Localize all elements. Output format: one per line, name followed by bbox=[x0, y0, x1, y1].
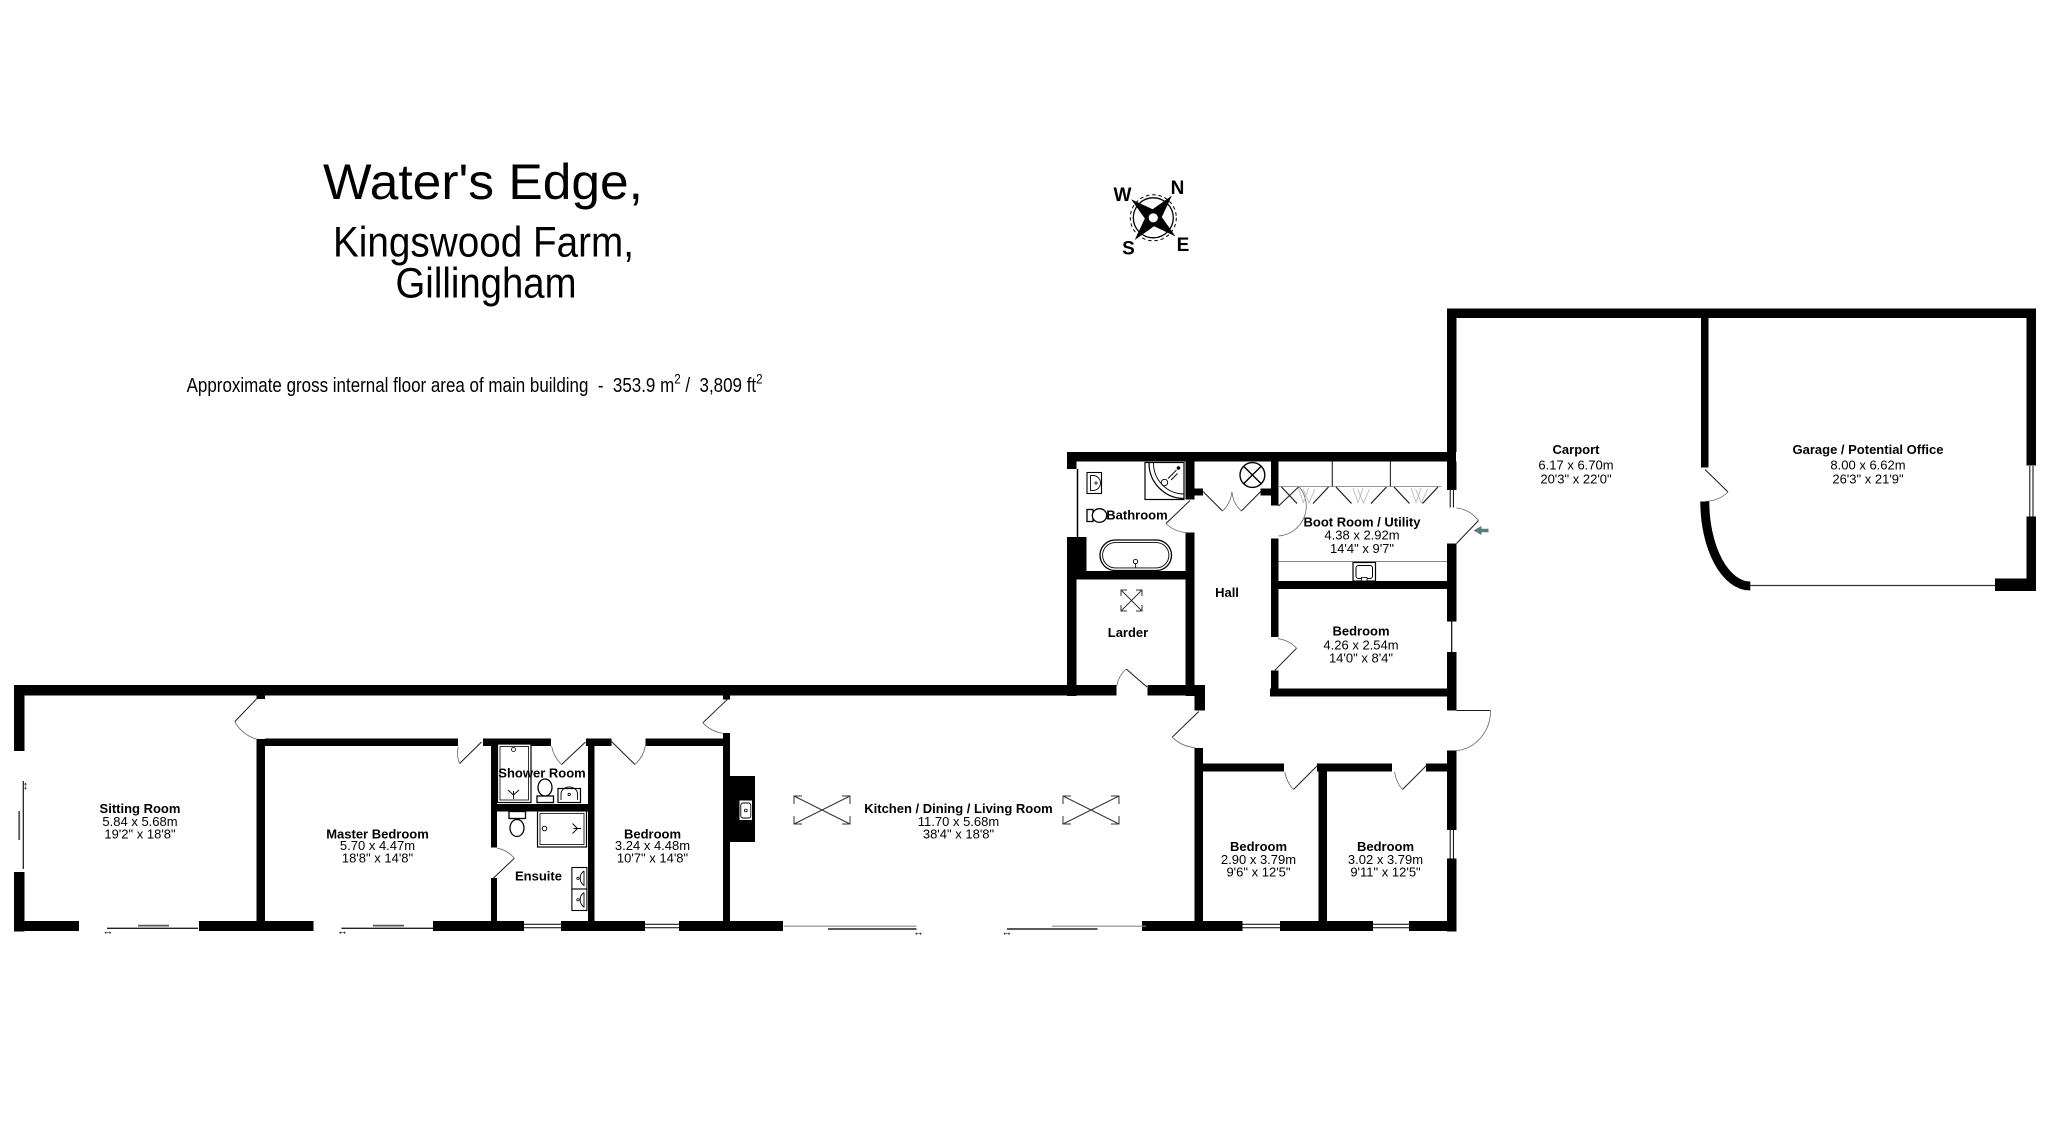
svg-text:↔: ↔ bbox=[337, 926, 348, 938]
svg-text:Carport: Carport bbox=[1553, 442, 1601, 457]
svg-text:W: W bbox=[1114, 185, 1132, 206]
svg-text:N: N bbox=[1171, 178, 1185, 199]
svg-text:Bathroom: Bathroom bbox=[1106, 508, 1167, 523]
svg-text:Ensuite: Ensuite bbox=[515, 869, 562, 884]
svg-text:↔: ↔ bbox=[1002, 927, 1013, 939]
svg-text:18'8" x 14'8": 18'8" x 14'8" bbox=[342, 851, 414, 866]
svg-text:6.17 x 6.70m: 6.17 x 6.70m bbox=[1538, 458, 1613, 473]
svg-text:38'4" x 18'8": 38'4" x 18'8" bbox=[923, 827, 995, 842]
svg-text:Water's Edge,: Water's Edge, bbox=[323, 154, 643, 210]
svg-text:↕: ↕ bbox=[23, 780, 29, 792]
svg-text:Garage / Potential Office: Garage / Potential Office bbox=[1793, 442, 1944, 457]
svg-text:↔: ↔ bbox=[103, 926, 114, 938]
svg-text:9'11" x 12'5": 9'11" x 12'5" bbox=[1350, 865, 1421, 880]
svg-text:Hall: Hall bbox=[1215, 585, 1239, 600]
svg-text:14'4" x 9'7": 14'4" x 9'7" bbox=[1330, 541, 1394, 556]
svg-text:20'3" x 22'0": 20'3" x 22'0" bbox=[1540, 472, 1612, 487]
svg-text:Shower Room: Shower Room bbox=[498, 766, 585, 781]
svg-text:S: S bbox=[1122, 239, 1135, 260]
svg-text:9'6" x 12'5": 9'6" x 12'5" bbox=[1226, 865, 1290, 880]
svg-text:8.00 x 6.62m: 8.00 x 6.62m bbox=[1830, 458, 1905, 473]
svg-text:Larder: Larder bbox=[1108, 625, 1148, 640]
svg-text:14'0" x 8'4": 14'0" x 8'4" bbox=[1329, 651, 1393, 666]
svg-text:26'3" x 21'9": 26'3" x 21'9" bbox=[1832, 472, 1904, 487]
svg-text:Gillingham: Gillingham bbox=[396, 260, 577, 308]
svg-text:19'2" x 18'8": 19'2" x 18'8" bbox=[104, 827, 176, 842]
svg-text:Bedroom: Bedroom bbox=[1332, 624, 1389, 639]
svg-text:10'7" x 14'8": 10'7" x 14'8" bbox=[617, 851, 689, 866]
svg-text:↔: ↔ bbox=[913, 927, 924, 939]
svg-text:E: E bbox=[1177, 235, 1190, 256]
